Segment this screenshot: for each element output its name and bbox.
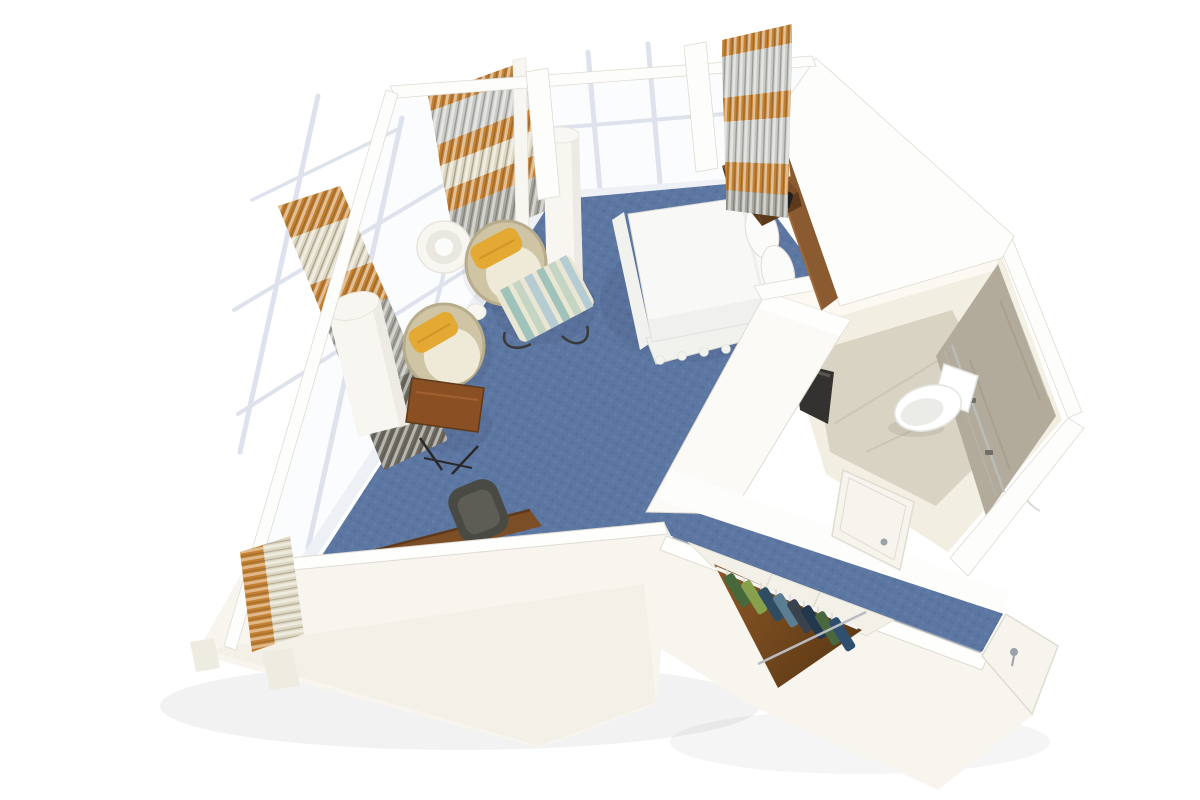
entry-door-handle: [1010, 648, 1018, 656]
bed-skirt-ruffle: [656, 356, 665, 365]
drape-slats: [722, 24, 792, 218]
shower-hinge: [985, 450, 993, 455]
bed-skirt-ruffle: [722, 345, 731, 354]
bathroom-door-handle: [881, 539, 888, 546]
stateroom-floorplan: [0, 0, 1200, 800]
side-table-top: [406, 378, 484, 432]
bed-skirt-ruffle: [700, 348, 709, 357]
floor-lamp-hub: [435, 238, 453, 256]
floorplan-render-stage: [0, 0, 1200, 800]
drape-panel-right: [722, 24, 792, 218]
bed-skirt-ruffle: [678, 352, 687, 361]
